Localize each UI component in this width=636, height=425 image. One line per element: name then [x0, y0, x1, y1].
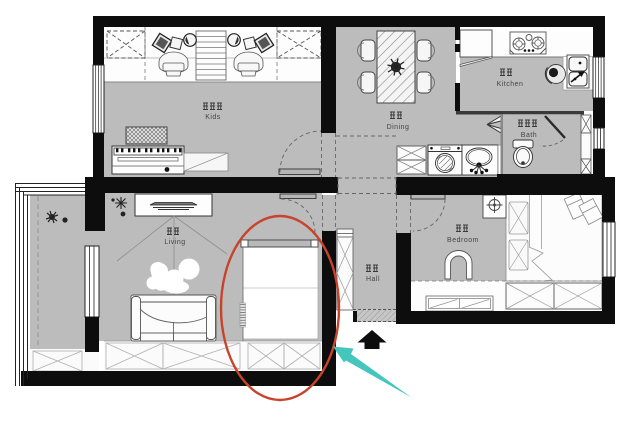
svg-text:Living: Living	[164, 239, 185, 246]
svg-text:Kitchen: Kitchen	[497, 81, 524, 88]
svg-text:Bedroom: Bedroom	[447, 237, 479, 244]
svg-text:Bath: Bath	[521, 132, 537, 139]
svg-text:Kids: Kids	[205, 114, 221, 121]
svg-text:Dining: Dining	[387, 124, 410, 131]
svg-text:Hall: Hall	[366, 276, 380, 283]
